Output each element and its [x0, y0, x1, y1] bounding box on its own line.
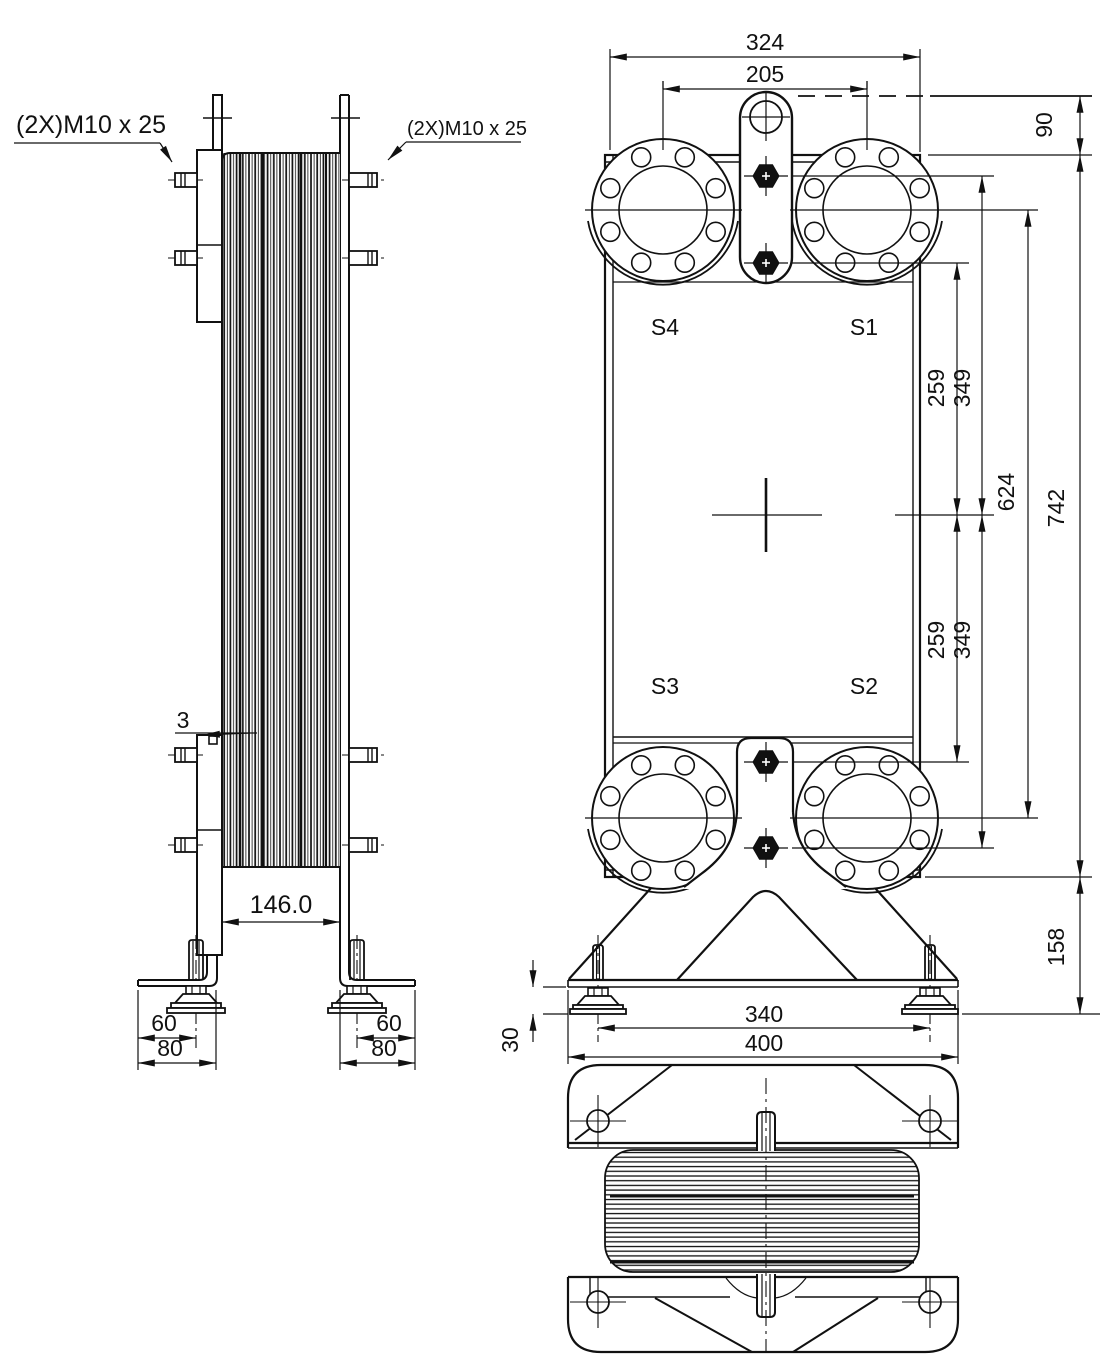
- dim-label-340: 340: [745, 1001, 783, 1027]
- dim-label-60-left: 60: [151, 1010, 177, 1036]
- bolt-note-left-label: (2X)M10 x 25: [16, 111, 166, 139]
- paper-background: [0, 0, 1112, 1362]
- bottom-view-plate-pack: [605, 1150, 919, 1272]
- dim-label-80-right: 80: [371, 1035, 397, 1061]
- port-label-s3: S3: [651, 673, 679, 699]
- dim-label-3: 3: [177, 707, 190, 733]
- port-label-s2: S2: [850, 673, 878, 699]
- dim-label-146: 146.0: [250, 891, 313, 919]
- dim-label-349-lower: 349: [949, 621, 975, 659]
- dim-label-742: 742: [1043, 489, 1069, 527]
- port-label-s4: S4: [651, 314, 679, 340]
- dim-label-158: 158: [1043, 928, 1069, 966]
- dim-label-205: 205: [746, 61, 784, 87]
- dim-label-90: 90: [1031, 112, 1057, 138]
- dim-label-400: 400: [745, 1030, 783, 1056]
- dim-label-259-lower: 259: [923, 621, 949, 659]
- heat-exchanger-drawing: (2X)M10 x 25 (2X)M10 x 25 3 146.0 60 80 …: [0, 0, 1112, 1362]
- plate-pack-side: [222, 153, 340, 867]
- dim-label-60-right: 60: [376, 1010, 402, 1036]
- dim-label-349-upper: 349: [949, 369, 975, 407]
- frame-plate-top: [197, 150, 222, 322]
- port-flange-s4: [588, 139, 738, 285]
- dim-label-324: 324: [746, 29, 785, 55]
- dim-label-30: 30: [497, 1027, 523, 1053]
- frame-plate-tab: [209, 736, 217, 744]
- port-label-s1: S1: [850, 314, 878, 340]
- drawing-page: (2X)M10 x 25 (2X)M10 x 25 3 146.0 60 80 …: [0, 0, 1112, 1362]
- bolt-note-right-label: (2X)M10 x 25: [407, 118, 527, 140]
- dim-label-624: 624: [993, 473, 1019, 512]
- hanger-bracket: [740, 92, 792, 283]
- dim-label-259-upper: 259: [923, 369, 949, 407]
- dim-label-80-left: 80: [157, 1035, 183, 1061]
